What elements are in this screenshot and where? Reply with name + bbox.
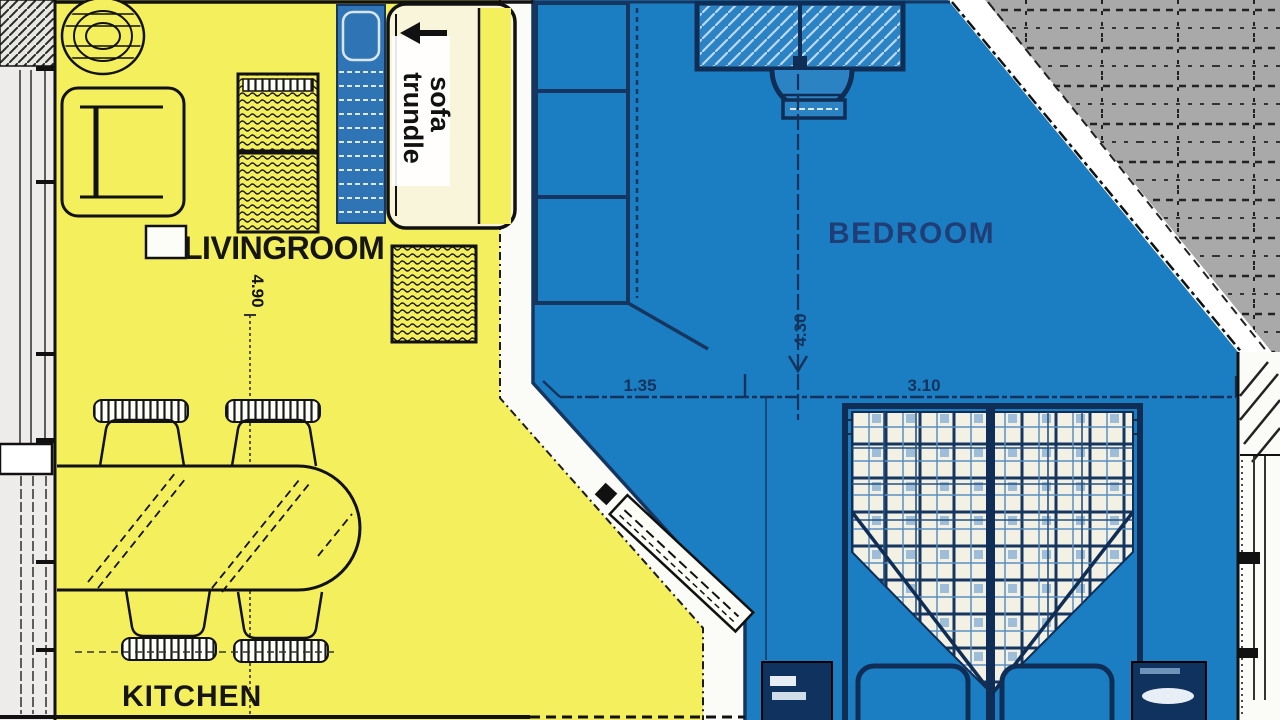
- livingroom-dim-value: 4.90: [248, 274, 267, 307]
- pillow-right: [1002, 666, 1112, 720]
- side-table: [146, 226, 186, 258]
- armchair-small: [392, 246, 476, 342]
- loveseat-top-bar: [243, 79, 313, 91]
- nightstand-right: [1132, 662, 1206, 720]
- trundle-bed: [337, 5, 385, 223]
- bed-center-divider: [986, 406, 995, 720]
- double-bed: [845, 406, 1140, 720]
- armchair-large: [62, 88, 184, 216]
- annotation-sofa: sofa: [425, 76, 455, 133]
- livingroom-label: LIVINGROOM: [183, 230, 384, 266]
- sofa-backrest: [480, 8, 511, 224]
- floorplan-image: sofa trundle LIVINGROOM 4.90: [0, 0, 1280, 720]
- wardrobe-handle: [793, 56, 807, 67]
- fan-chair: [62, 0, 144, 74]
- nightstand-left: [762, 662, 832, 720]
- loveseat: [238, 74, 318, 232]
- pillow-left: [858, 666, 968, 720]
- window-sill: [0, 444, 52, 474]
- dim-value-depth: 4.30: [791, 313, 810, 346]
- left-wall: [0, 0, 55, 720]
- kitchen-table: [57, 466, 360, 592]
- dim-value-right: 3.10: [907, 376, 940, 395]
- wardrobe: [697, 3, 903, 69]
- right-wall-tick2: [1238, 648, 1258, 658]
- left-wall-hatch: [0, 0, 55, 66]
- dim-value-left: 1.35: [623, 376, 656, 395]
- annotation-trundle: trundle: [398, 72, 428, 164]
- kitchen-label: KITCHEN: [122, 680, 262, 713]
- right-wall: [1238, 352, 1280, 720]
- bedroom-label: BEDROOM: [828, 217, 995, 250]
